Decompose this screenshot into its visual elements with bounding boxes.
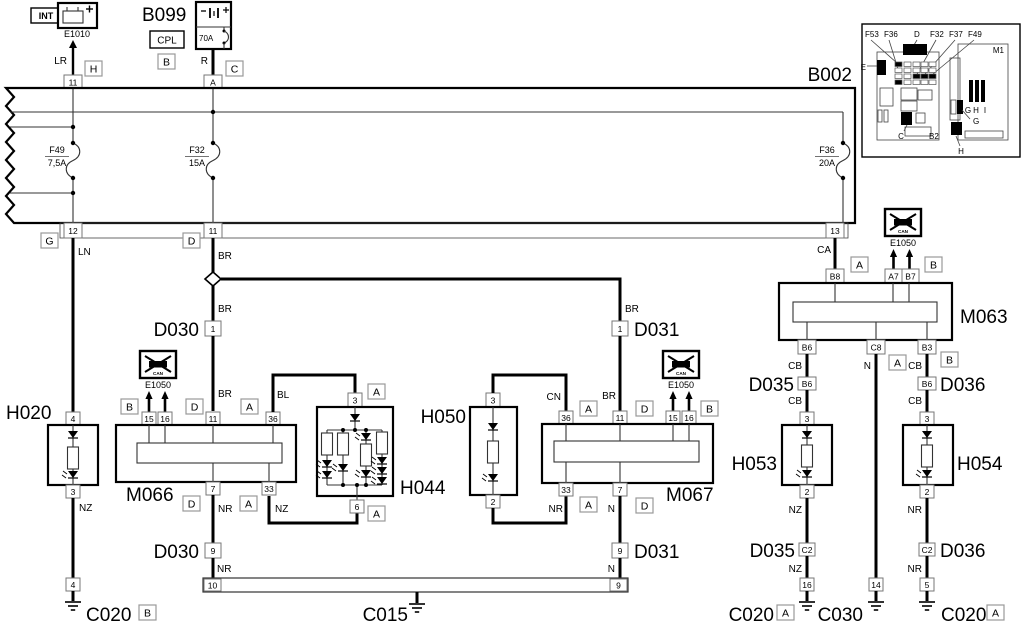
h020-pin4: 4 [71, 414, 76, 424]
d031-label2: D031 [634, 542, 679, 563]
inset-f32: F32 [930, 30, 944, 39]
h044-view-a-bottom-label: A [373, 509, 380, 521]
view-label-d: D [188, 236, 196, 248]
m067-label: M067 [666, 485, 714, 506]
d035-label2: D035 [750, 541, 795, 562]
m063-view-a-top-label: A [856, 260, 863, 272]
f32-name: F32 [189, 145, 205, 155]
inset-relay-e [877, 60, 886, 75]
chain-c030: N 14 C030 [818, 354, 884, 625]
inset-f37: F37 [949, 30, 963, 39]
d031-pin1: 1 [618, 324, 623, 334]
m063-pin-b6: B6 [802, 343, 813, 353]
f36-name: F36 [819, 145, 835, 155]
h020-label: H020 [6, 403, 51, 424]
m067-view-b-label: B [706, 404, 713, 416]
f49-name: F49 [49, 145, 65, 155]
arrow-up-icon [161, 391, 168, 412]
h054-label: H054 [957, 454, 1003, 475]
d030-pin1: 1 [211, 324, 216, 334]
inset-f36: F36 [884, 30, 898, 39]
wire-label-ca: CA [817, 245, 831, 256]
wire-label-bl: BL [277, 390, 290, 401]
m063-view-b-top-label: B [930, 260, 937, 272]
ground-bus-section: D030 9 NR 9 D031 N 10 9 C015 [154, 542, 680, 625]
arrow-up-icon [69, 40, 77, 48]
fusebox-b002: B002 F49 7,5A F32 15A F36 20A [6, 65, 855, 248]
wire-label-nz-d035: NZ [789, 564, 802, 575]
wire-label-br-mid: BR [218, 304, 232, 315]
pin-label-11: 11 [69, 78, 78, 88]
d035-pin-c2: C2 [802, 545, 813, 555]
ground-icon [409, 604, 425, 612]
m063-body [779, 283, 952, 340]
m067-view-d-bottom-label: D [641, 501, 649, 513]
resistor-icon [488, 441, 499, 463]
c020-mid-label: C020 [729, 605, 774, 625]
b002-label: B002 [808, 65, 852, 86]
inset-f53: F53 [865, 30, 879, 39]
m063-pin-a7: A7 [888, 272, 899, 282]
d030-label: D030 [154, 320, 199, 341]
arrow-up-icon [669, 391, 676, 412]
module-m067: CAN E1050 A D B 36 11 15 16 33 7 A D M06… [542, 351, 718, 543]
gnd-pin14: 14 [871, 580, 881, 590]
m063-pin-b7: B7 [905, 272, 916, 282]
wire-label-br-m067: BR [602, 391, 616, 402]
d036-label: D036 [940, 375, 985, 396]
inset-relay-g [957, 100, 963, 114]
m067-pin16: 16 [684, 413, 694, 423]
arrow-up-icon [906, 249, 913, 270]
can-node-mid: CAN E1050 [663, 351, 699, 412]
wire-label-n-d031: N [608, 564, 615, 575]
arrow-up-icon [685, 391, 692, 412]
wire-label-nr-m066: NR [218, 504, 232, 515]
can-icon-label: CAN [676, 371, 687, 376]
schematic-canvas: INT E1010 LR H 11 B099 CPL B 70A R C A [0, 0, 1024, 625]
inset-relay-d [903, 44, 927, 55]
inset-g-row: G [965, 106, 971, 115]
gnd-pin4: 4 [71, 580, 76, 590]
m066-view-a-bottom-label: A [245, 499, 252, 511]
c030-label: C030 [818, 605, 863, 625]
inset-e: E [861, 63, 866, 72]
b099-label: B099 [142, 5, 186, 26]
wire-label-cb4: CB [908, 396, 922, 407]
c020-left-view: B [144, 608, 151, 620]
h044-pin3: 3 [353, 396, 358, 406]
ground-icon [919, 602, 935, 610]
wire-label-br-top: BR [218, 251, 232, 262]
h020-pin3: 3 [71, 487, 76, 497]
resistor-icon [377, 432, 388, 454]
wire-label-n-m063: N [864, 361, 871, 372]
b099-fuse-rating: 70A [199, 34, 214, 43]
view-label-h: H [90, 64, 98, 76]
h050-label: H050 [421, 407, 466, 428]
b002-connector-strip [60, 223, 848, 238]
m063-pin-b8: B8 [830, 272, 841, 282]
wire-label-cb2: CB [788, 396, 802, 407]
wiring-diagram: INT E1010 LR H 11 B099 CPL B 70A R C A [0, 0, 1024, 625]
d035-label: D035 [749, 375, 794, 396]
module-m063: CAN E1050 A B B8 A7 B7 M063 B6 C8 B3 A B [779, 209, 1008, 370]
wire-label-cn: CN [547, 392, 561, 403]
m063-view-a-bottom-label: A [894, 358, 901, 370]
m067-pin36: 36 [561, 413, 571, 423]
pin-label-11b: 11 [209, 226, 218, 236]
c020-mid-view: A [782, 608, 789, 620]
m067-view-a-bottom-label: A [585, 500, 592, 512]
c020-right-label: C020 [941, 605, 986, 625]
can-icon-label: CAN [898, 229, 909, 234]
d031-pin9: 9 [618, 546, 623, 556]
m066-pin36: 36 [268, 414, 278, 424]
m067-view-d-top-label: D [641, 404, 649, 416]
wire-label-br-d031: BR [625, 304, 639, 315]
m066-pin11: 11 [209, 414, 218, 424]
h053-label: H053 [732, 454, 777, 475]
resistor-icon [322, 433, 333, 455]
d036-pin-b6: B6 [922, 379, 933, 389]
pin-label-a: A [210, 78, 216, 88]
wire-label-br-m066: BR [218, 389, 232, 400]
wire-label-nr-h054: NR [908, 505, 922, 516]
view-label-g: G [45, 236, 53, 248]
wire-label-n-m067: N [608, 504, 615, 515]
wire-br-branch [221, 279, 620, 321]
fusebox-inset: F53 F36 D F32 F37 F49 E C B2 M1 G H I [861, 24, 1020, 157]
bus-pin9: 9 [616, 581, 621, 591]
inset-d: D [914, 30, 920, 39]
b002-outline [6, 88, 855, 223]
f32-rating: 15A [189, 158, 205, 168]
d035-pin-b6: B6 [802, 379, 813, 389]
inset-m1: M1 [993, 46, 1005, 55]
can-node-right: CAN E1050 [885, 209, 921, 270]
m067-body [542, 424, 713, 483]
m066-pin7: 7 [211, 484, 216, 494]
m066-label: M066 [126, 485, 174, 506]
f36-rating: 20A [819, 158, 835, 168]
e1050-mid-label: E1050 [668, 380, 694, 390]
wire-label-cb1: CB [788, 361, 802, 372]
resistor-icon [338, 433, 349, 455]
h050-pin3: 3 [491, 396, 496, 406]
d036-label2: D036 [940, 541, 985, 562]
resistor-icon [922, 445, 933, 467]
wire-label-ln: LN [78, 247, 91, 258]
chain-d035-h053: CB D035 B6 CB 3 H053 2 NZ C2 D035 NZ 16 … [729, 354, 832, 625]
inset-f49: F49 [968, 30, 982, 39]
ground-icon [799, 602, 815, 610]
m067-view-a-top-label: A [585, 404, 592, 416]
h053-pin3: 3 [805, 414, 810, 424]
c020-right-view: A [992, 608, 999, 620]
wire-label-r: R [201, 56, 208, 67]
m067-pin7: 7 [618, 485, 623, 495]
d030-label2: D030 [154, 542, 199, 563]
m067-pin11: 11 [616, 413, 625, 423]
gnd-pin5: 5 [925, 580, 930, 590]
m063-label: M063 [960, 307, 1008, 328]
ground-icon [868, 602, 884, 610]
m063-pin-c8: C8 [871, 343, 882, 353]
inset-h2: H [958, 147, 964, 156]
e1050-left-label: E1050 [145, 380, 171, 390]
inset-g2: G [973, 117, 979, 126]
m066-view-d-bottom-label: D [188, 499, 196, 511]
wire-label-nz-h053: NZ [789, 505, 802, 516]
chain-d036-h054: CB B6 D036 CB 3 H054 2 NR C2 D036 NR 5 C… [903, 354, 1004, 625]
ground-icon [65, 602, 81, 610]
f49-rating: 7,5A [48, 158, 67, 168]
resistor-icon [802, 445, 813, 467]
splice-diamond [205, 272, 221, 286]
e1010-label: E1010 [64, 29, 90, 39]
arrow-up-icon [145, 391, 152, 412]
int-label: INT [39, 11, 54, 21]
gnd-pin16: 16 [802, 580, 812, 590]
component-h044: 3 A H044 6 A [316, 384, 446, 521]
inset-h-row: H [973, 106, 979, 115]
d036-pin-c2: C2 [922, 545, 933, 555]
m063-pin-b3: B3 [922, 343, 933, 353]
m066-view-b-label: B [126, 402, 133, 414]
m067-pin33: 33 [561, 485, 571, 495]
battery-node-e1010: INT E1010 LR H 11 [31, 3, 102, 89]
m066-pin16: 16 [160, 414, 170, 424]
m066-pin15: 15 [144, 414, 154, 424]
m066-view-a-top-label: A [246, 402, 253, 414]
m067-pin15: 15 [668, 413, 678, 423]
battery-b099: B099 CPL B 70A R C A [142, 2, 243, 89]
wire-label-nr-d030: NR [217, 564, 231, 575]
c015-label: C015 [363, 605, 408, 625]
h054-pin2: 2 [925, 487, 930, 497]
wire-label-nz-m066: NZ [275, 504, 288, 515]
arrow-up-icon [890, 249, 897, 270]
h044-view-a-top-label: A [373, 387, 380, 399]
c020-left-label: C020 [86, 605, 131, 625]
battery-icon [58, 3, 97, 28]
wire-label-nz-h020: NZ [79, 503, 92, 514]
wire-label-nr-h050: NR [549, 504, 563, 515]
resistor-icon [68, 447, 79, 469]
inset-relay-h [951, 122, 962, 135]
ground-bus-bar [203, 578, 628, 592]
can-node-left: CAN E1050 [140, 351, 176, 412]
wire-label-nr-d036: NR [908, 564, 922, 575]
inset-i-row: I [984, 106, 986, 115]
inset-b2: B2 [929, 132, 939, 141]
wire-label-cb3: CB [908, 361, 922, 372]
h050-pin2: 2 [491, 497, 496, 507]
can-icon-label: CAN [153, 371, 164, 376]
inset-c: C [898, 132, 904, 141]
e1050-right-label: E1050 [890, 238, 916, 248]
h044-pin6: 6 [355, 502, 360, 512]
wire-label-lr: LR [54, 56, 67, 67]
resistor-icon [361, 444, 372, 466]
m063-view-b-bottom-label: B [946, 355, 953, 367]
pin-label-12: 12 [68, 226, 78, 236]
h054-pin3: 3 [925, 414, 930, 424]
view-label-c: C [231, 64, 239, 76]
inset-relay-c [901, 112, 912, 125]
m066-pin33: 33 [264, 484, 274, 494]
view-label-b: B [163, 57, 170, 69]
d031-label: D031 [634, 320, 679, 341]
h044-label: H044 [400, 478, 446, 499]
m066-view-d-top-label: D [191, 402, 199, 414]
pin-label-13: 13 [830, 226, 840, 236]
cpl-label: CPL [157, 36, 177, 47]
d030-pin9: 9 [211, 546, 216, 556]
bus-pin10: 10 [208, 581, 218, 591]
h053-pin2: 2 [805, 487, 810, 497]
